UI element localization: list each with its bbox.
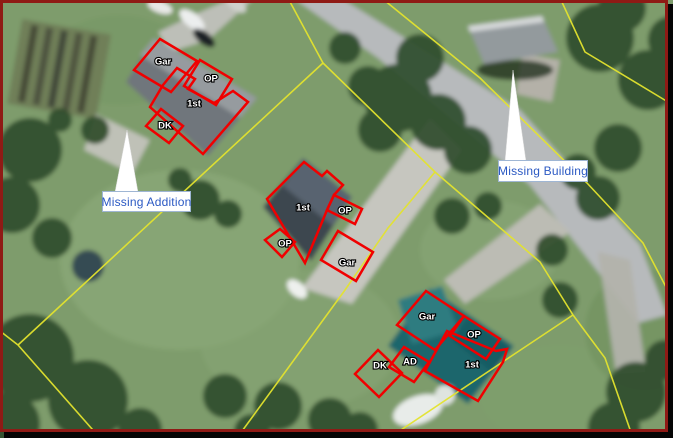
callout-missing-addition-label: Missing Addition: [102, 195, 192, 209]
callout-missing-building[interactable]: Missing Building: [498, 160, 588, 182]
aerial-photo: [0, 0, 673, 438]
garden-plot: [7, 19, 111, 119]
drop-shadow-right: [668, 4, 673, 438]
window-border-left: [0, 0, 3, 432]
window-border-top: [0, 0, 668, 3]
house4-roof: [468, 16, 558, 80]
callout-missing-building-label: Missing Building: [498, 164, 588, 178]
screenshot-frame: GarOP1stDK1stOPOPGarGarOP1stADDK Missing…: [0, 0, 673, 438]
aerial-map-canvas[interactable]: GarOP1stDK1stOPOPGarGarOP1stADDK Missing…: [0, 0, 673, 438]
drop-shadow-bottom: [4, 432, 673, 438]
callout-missing-addition[interactable]: Missing Addition: [102, 191, 191, 212]
